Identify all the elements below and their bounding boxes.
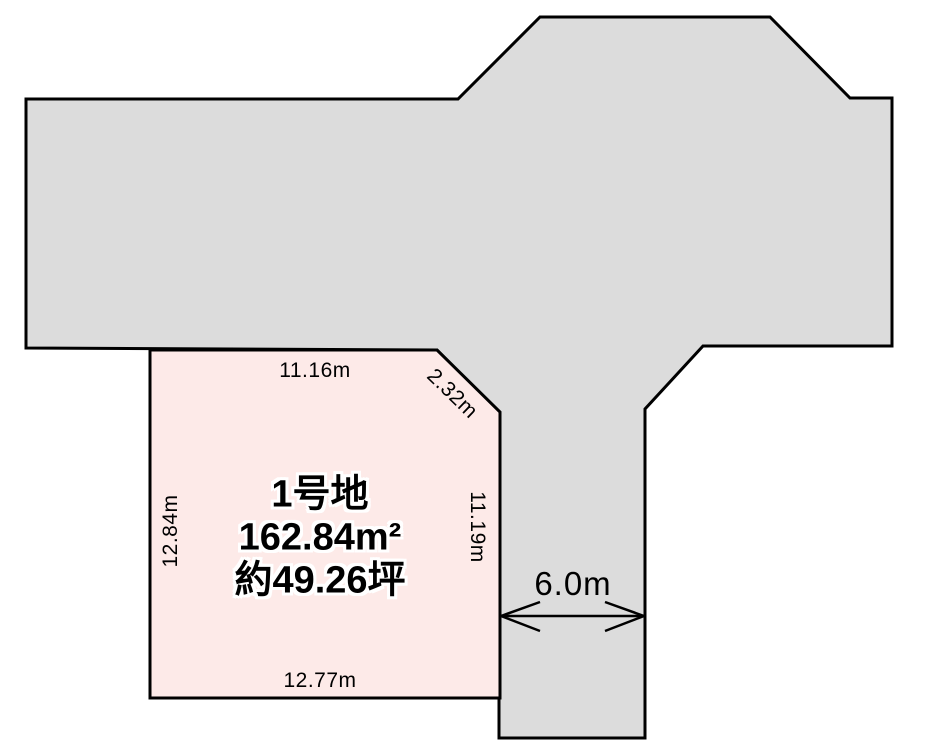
dimension-left-label: 12.84m [159,494,183,567]
road-width-label: 6.0m [534,565,611,603]
site-plan-svg [0,0,932,754]
parcel-caption: 1号地 162.84m² 約49.26坪 [234,474,405,603]
dimension-bottom-label: 12.77m [283,669,356,693]
dimension-top-label: 11.16m [279,359,351,383]
parcel-name: 1号地 [234,474,405,517]
parcel-area-tsubo: 約49.26坪 [234,560,405,603]
site-plan-diagram: 11.16m 2.32m 12.84m 11.19m 12.77m 6.0m 1… [0,0,932,754]
parcel-area-m2: 162.84m² [234,517,405,560]
dimension-right-label: 11.19m [465,491,489,563]
